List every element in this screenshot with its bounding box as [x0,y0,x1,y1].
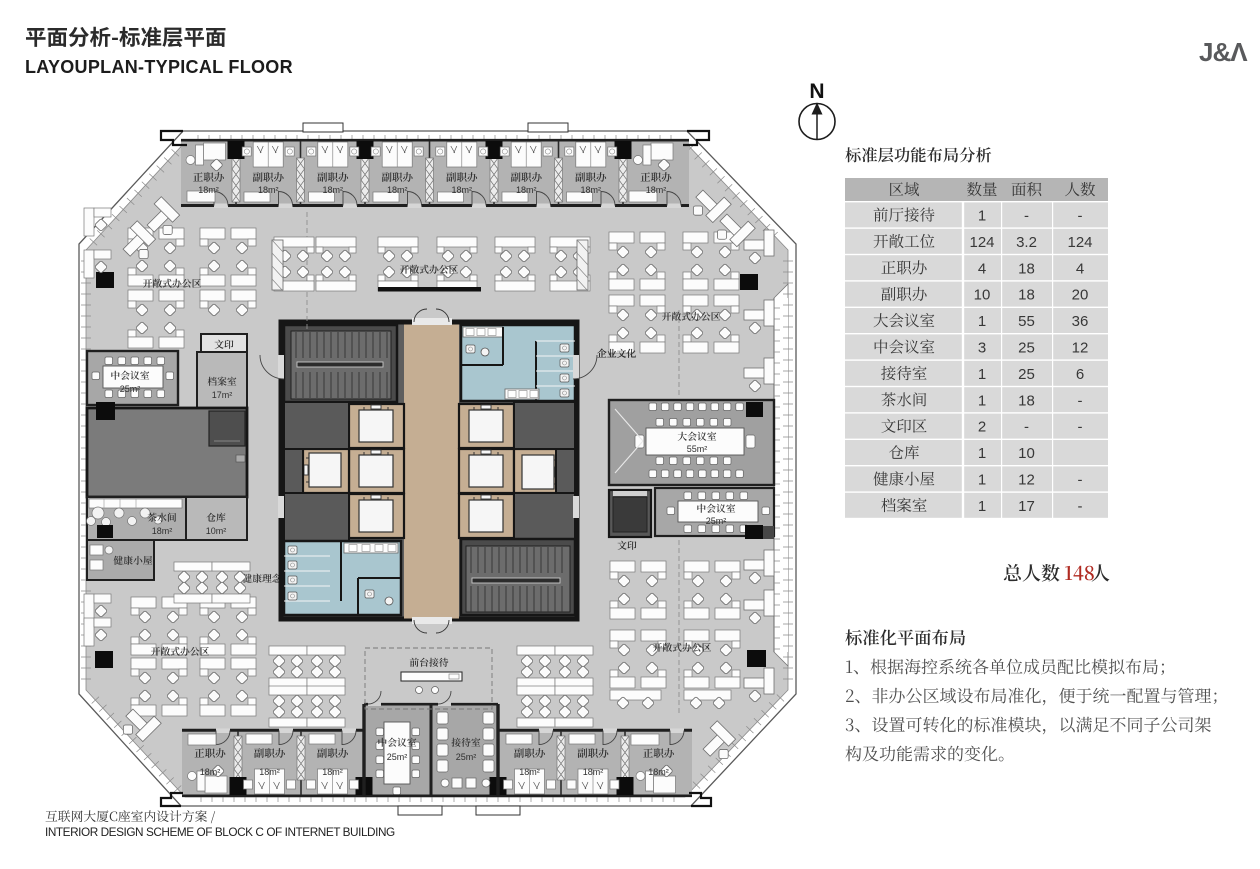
svg-text:1: 1 [978,445,986,462]
svg-text:18m²: 18m² [259,767,280,777]
svg-text:4: 4 [978,260,986,277]
svg-text:1: 1 [978,313,986,330]
svg-text:18m²: 18m² [322,767,343,777]
svg-text:25m²: 25m² [387,752,408,762]
svg-text:18m²: 18m² [152,526,173,536]
svg-text:6: 6 [1076,366,1084,383]
svg-text:36: 36 [1072,313,1089,330]
svg-text:12: 12 [1072,340,1089,357]
svg-text:-: - [1078,208,1083,225]
svg-text:18m²: 18m² [258,185,279,195]
svg-text:3.2: 3.2 [1016,234,1037,251]
svg-text:18m²: 18m² [646,185,667,195]
svg-text:1: 1 [978,392,986,409]
svg-text:1: 1 [978,498,986,515]
svg-text:10m²: 10m² [206,526,227,536]
svg-text:18m²: 18m² [200,767,221,777]
svg-text:12: 12 [1018,472,1035,489]
svg-text:18m²: 18m² [198,185,219,195]
svg-text:18m²: 18m² [583,767,604,777]
svg-text:25m²: 25m² [456,752,477,762]
svg-text:-: - [1024,208,1029,225]
svg-text:-: - [1078,498,1083,515]
svg-text:10: 10 [974,287,991,304]
svg-text:18m²: 18m² [648,767,669,777]
svg-text:3: 3 [978,340,986,357]
svg-text:25: 25 [1018,340,1035,357]
svg-text:LAYOUPLAN-TYPICAL FLOOR: LAYOUPLAN-TYPICAL FLOOR [25,57,293,77]
svg-text:55: 55 [1018,313,1035,330]
svg-text:25m²: 25m² [706,516,727,526]
svg-text:17m²: 17m² [212,390,233,400]
svg-text:18m²: 18m² [452,185,473,195]
svg-text:1: 1 [978,366,986,383]
svg-text:INTERIOR DESIGN SCHEME OF BLOC: INTERIOR DESIGN SCHEME OF BLOCK C OF INT… [45,825,395,839]
svg-text:55m²: 55m² [687,444,708,454]
svg-text:20: 20 [1072,287,1089,304]
svg-text:-: - [1078,419,1083,436]
svg-text:124: 124 [969,234,994,251]
svg-text:J&Λ: J&Λ [1199,37,1248,67]
svg-text:18m²: 18m² [516,185,537,195]
svg-text:-: - [1078,392,1083,409]
svg-text:-: - [1078,472,1083,489]
svg-text:N: N [809,80,824,103]
svg-text:4: 4 [1076,260,1084,277]
svg-text:18m²: 18m² [581,185,602,195]
svg-text:-: - [1024,419,1029,436]
svg-text:18m²: 18m² [323,185,344,195]
svg-text:124: 124 [1067,234,1092,251]
svg-text:2: 2 [978,419,986,436]
svg-text:17: 17 [1018,498,1035,515]
svg-text:25: 25 [1018,366,1035,383]
svg-text:10: 10 [1018,445,1035,462]
svg-text:18m²: 18m² [387,185,408,195]
svg-text:18m²: 18m² [519,767,540,777]
svg-text:1: 1 [978,208,986,225]
svg-text:1: 1 [978,472,986,489]
svg-text:18: 18 [1018,287,1035,304]
svg-text:18: 18 [1018,260,1035,277]
svg-text:25m²: 25m² [120,384,141,394]
svg-text:18: 18 [1018,392,1035,409]
